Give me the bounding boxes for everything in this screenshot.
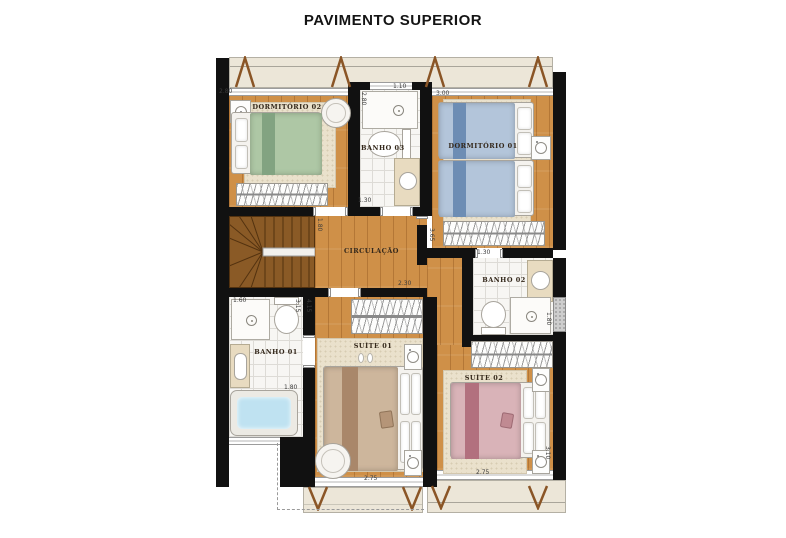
door-jamb [358,288,361,297]
shower-head-icon [393,105,404,116]
suite02-wardrobe [471,341,553,368]
dim-circ-left-depth: 1.80 [316,218,322,231]
dim-banho01-inner-width: 1.80 [284,385,297,391]
duvet [439,161,515,217]
dormitorio01-nightstand [531,136,551,160]
truss-icon [430,484,452,510]
banho01-shower [231,299,270,340]
lamp-icon [535,374,547,386]
wall-circulacao-bottom-right [360,288,427,297]
wall-right-exterior-top [553,72,566,250]
pillow [517,165,532,188]
door-jamb [313,207,316,216]
pillow [235,145,248,169]
banho01-window [229,437,280,445]
banho01-vanity [230,344,250,388]
room-label-dormitorio01: DORMITÓRIO 01 [448,142,518,150]
lamp-icon [407,351,419,363]
wall-dormitorio02-bottom [216,207,315,216]
throw-pillow [500,412,514,429]
suite02-double-bed [450,382,550,458]
dormitorio01-single-bed-2 [438,160,534,216]
room-label-dormitorio02: DORMITÓRIO 02 [252,103,322,111]
banho02-side-window-gap [553,250,566,258]
dormitorio01-window [432,88,553,96]
bathtub-water [237,397,291,429]
wall-left-exterior [216,58,229,487]
dim-banho03-width-top: 1.10 [393,84,406,90]
wall-banho03-right [420,82,432,216]
wall-dormitorio01-west [417,225,427,265]
staircase [229,216,315,288]
dim-suite02-width: 2.75 [476,470,489,476]
dim-banho02-depth: 1.80 [545,312,551,325]
dim-suite02-depth: 3.10 [544,446,550,459]
wall-banho03-bottom-right [412,207,432,216]
dormitorio02-wardrobe [236,183,328,206]
dim-dorm01-width: 3.00 [436,91,449,97]
dormitorio02-window [229,88,348,96]
dormitorio02-single-bed [231,112,321,174]
bed-runner [465,383,479,459]
dim-suite01-width: 2.75 [364,476,377,482]
truss-icon [527,484,549,510]
shower-head-icon [246,315,257,326]
room-label-suite02: SUÍTE 02 [462,374,506,382]
pillow [400,373,410,415]
dim-circ-bottom-width: 2.30 [398,281,411,287]
wall-right-exterior-bottom [553,332,566,480]
dim-banho03-depth: 2.80 [360,92,366,105]
throw-pillow [379,410,394,429]
door-jamb [410,207,413,216]
dim-dorm02-width: 2.80 [219,89,232,95]
banho02-toilet [481,301,506,328]
truss-icon [527,56,549,88]
lower-floor-projection-dashed-line [277,443,424,510]
door-jamb [500,249,503,258]
duvet [439,103,515,159]
dim-banho01-depth: 3.15 [294,299,300,312]
truss-icon [424,56,446,88]
truss-icon [234,56,256,88]
room-label-banho01: BANHO 01 [252,348,300,356]
pillow [517,132,532,155]
door-jamb [380,207,383,216]
wall-banho01-right-top [303,288,315,337]
banho03-shower [362,91,418,129]
staircase-drawing [229,216,315,288]
wall-banho02-top-left [427,248,477,258]
wall-suite-divider [423,297,437,487]
bed-runner [453,103,466,159]
sink-icon [531,271,550,290]
dim-circ-right-depth: 3.65 [428,228,434,241]
banho02-toilet-tank [481,327,506,335]
truss-icon [330,56,352,88]
door-jamb [303,335,315,338]
sink-icon [399,172,417,190]
dim-banho03-width-bottom: 1.30 [358,198,371,204]
dormitorio01-wardrobe [443,221,545,246]
lamp-icon [535,142,547,154]
suite01-wardrobe [351,299,423,334]
door-jamb [303,365,315,368]
door-jamb [328,288,331,297]
room-label-circulacao: CIRCULAÇÃO [344,247,396,255]
banho03-vanity [394,158,420,206]
banho02-vanity [527,260,553,302]
pillow [517,107,532,130]
sink-icon [234,353,247,380]
wall-banho03-bottom-left [348,207,382,216]
wall-banho02-left [462,258,473,335]
suite01-nightstand-top [404,344,422,370]
door-jamb [416,216,428,219]
shower-head-icon [526,311,537,322]
banho01-bathtub [230,390,298,436]
room-label-banho02: BANHO 02 [482,276,526,284]
slippers-icon [358,353,374,363]
bed-runner [262,113,275,175]
pillow [411,373,421,415]
wall-banho03-left [348,82,360,216]
pillow [517,190,532,213]
dormitorio02-armchair [321,98,351,128]
floorplan-page: { "title": "PAVIMENTO SUPERIOR", "rooms"… [0,0,786,538]
dim-suite01-depth: 4.15 [305,299,311,312]
dim-banho01-width: 1.60 [233,298,246,304]
bed-runner [453,161,466,217]
floor-plan: DORMITÓRIO 02 BANHO 03 DORMITÓRIO 01 CIR… [0,0,786,538]
room-label-suite01: SUÍTE 01 [350,342,396,350]
duvet [250,113,322,175]
door-jamb [345,207,348,216]
dim-banho02-width: 1.30 [477,250,490,256]
pillow [235,118,248,142]
room-label-banho03: BANHO 03 [361,144,401,152]
wall-banho01-top [216,288,303,297]
suite02-nightstand-top [532,368,550,392]
banho02-glass-block-window [553,297,566,332]
